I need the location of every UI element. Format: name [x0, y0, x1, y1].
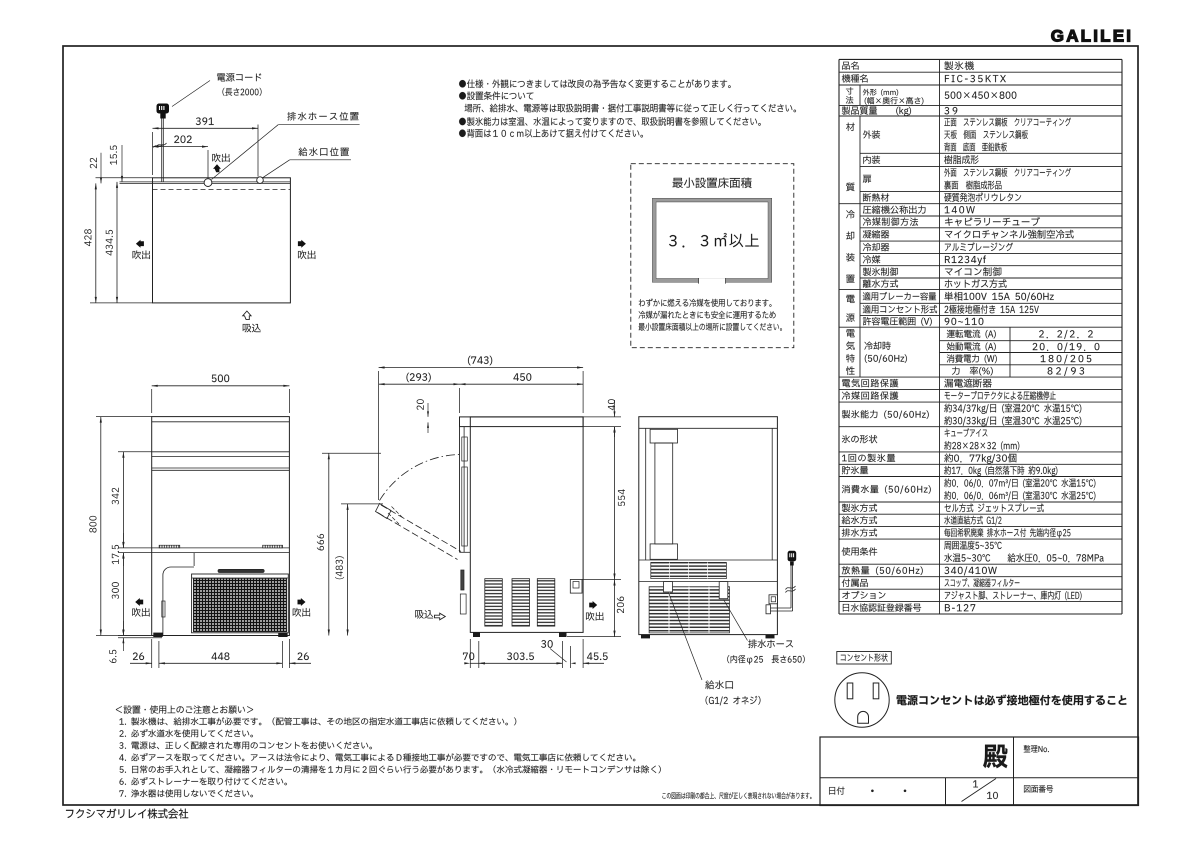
- svg-text:GALILEI: GALILEI: [1051, 27, 1133, 46]
